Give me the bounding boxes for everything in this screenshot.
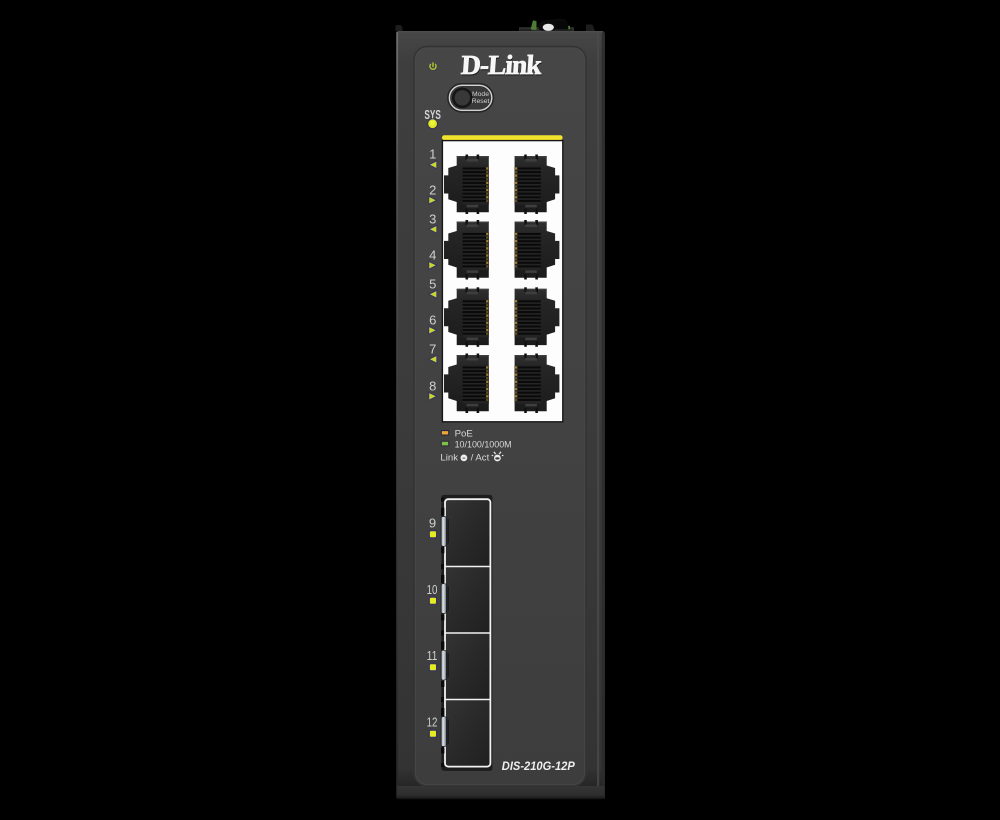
svg-text:10/100/1000M: 10/100/1000M [455, 439, 512, 450]
svg-text:DIS-210G-12P: DIS-210G-12P [502, 759, 576, 773]
svg-text:D-Link: D-Link [460, 49, 543, 80]
svg-text:4: 4 [429, 248, 436, 263]
svg-text:Mode: Mode [472, 91, 489, 98]
svg-text:9: 9 [429, 515, 436, 530]
svg-text:/ Act: / Act [471, 452, 490, 463]
svg-text:3: 3 [429, 212, 436, 227]
svg-text:12: 12 [427, 715, 438, 730]
svg-text:1: 1 [429, 147, 436, 162]
svg-text:7: 7 [429, 342, 436, 357]
svg-text:2: 2 [429, 183, 436, 198]
svg-text:6: 6 [429, 313, 436, 328]
svg-text:5: 5 [429, 277, 436, 292]
svg-text:10: 10 [427, 582, 438, 597]
svg-text:Link: Link [440, 452, 458, 463]
svg-text:PoE: PoE [455, 428, 473, 439]
svg-text:Reset: Reset [472, 98, 490, 105]
svg-text:8: 8 [429, 379, 436, 394]
svg-text:11: 11 [427, 648, 438, 663]
